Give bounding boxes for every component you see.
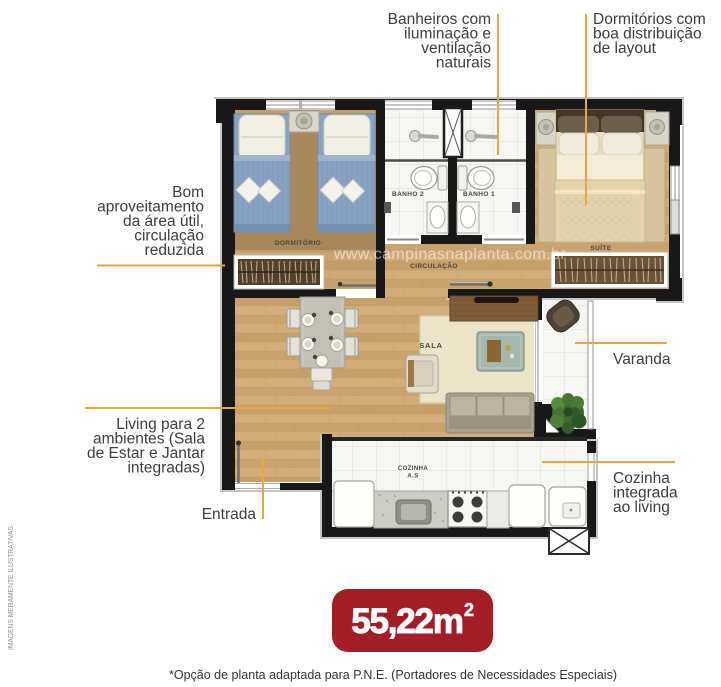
svg-text:reduzida: reduzida [145,242,205,259]
svg-text:Entrada: Entrada [202,506,257,523]
svg-text:DORMITÓRIO: DORMITÓRIO [275,238,321,247]
svg-text:*Opção de planta adaptada para: *Opção de planta adaptada para P.N.E. (P… [169,668,617,682]
svg-text:A.S: A.S [407,474,418,480]
svg-text:BANHO 1: BANHO 1 [463,191,495,198]
svg-text:SUÍTE: SUÍTE [590,243,611,252]
svg-text:2: 2 [464,600,474,620]
svg-text:Varanda: Varanda [613,351,671,368]
svg-text:55,22m: 55,22m [351,602,463,641]
svg-text:IMAGENS MERAMENTE ILUSTRATIVAS: IMAGENS MERAMENTE ILUSTRATIVAS [6,526,15,650]
svg-text:ao living: ao living [613,499,670,516]
svg-text:naturais: naturais [436,55,491,72]
svg-text:COZINHA: COZINHA [398,466,428,472]
svg-text:www.campinasnaplanta.com.br: www.campinasnaplanta.com.br [333,246,567,263]
svg-text:SALA: SALA [419,341,443,350]
svg-text:BANHO 2: BANHO 2 [392,191,424,198]
svg-text:integradas): integradas) [127,460,205,477]
svg-text:de layout: de layout [593,40,657,57]
